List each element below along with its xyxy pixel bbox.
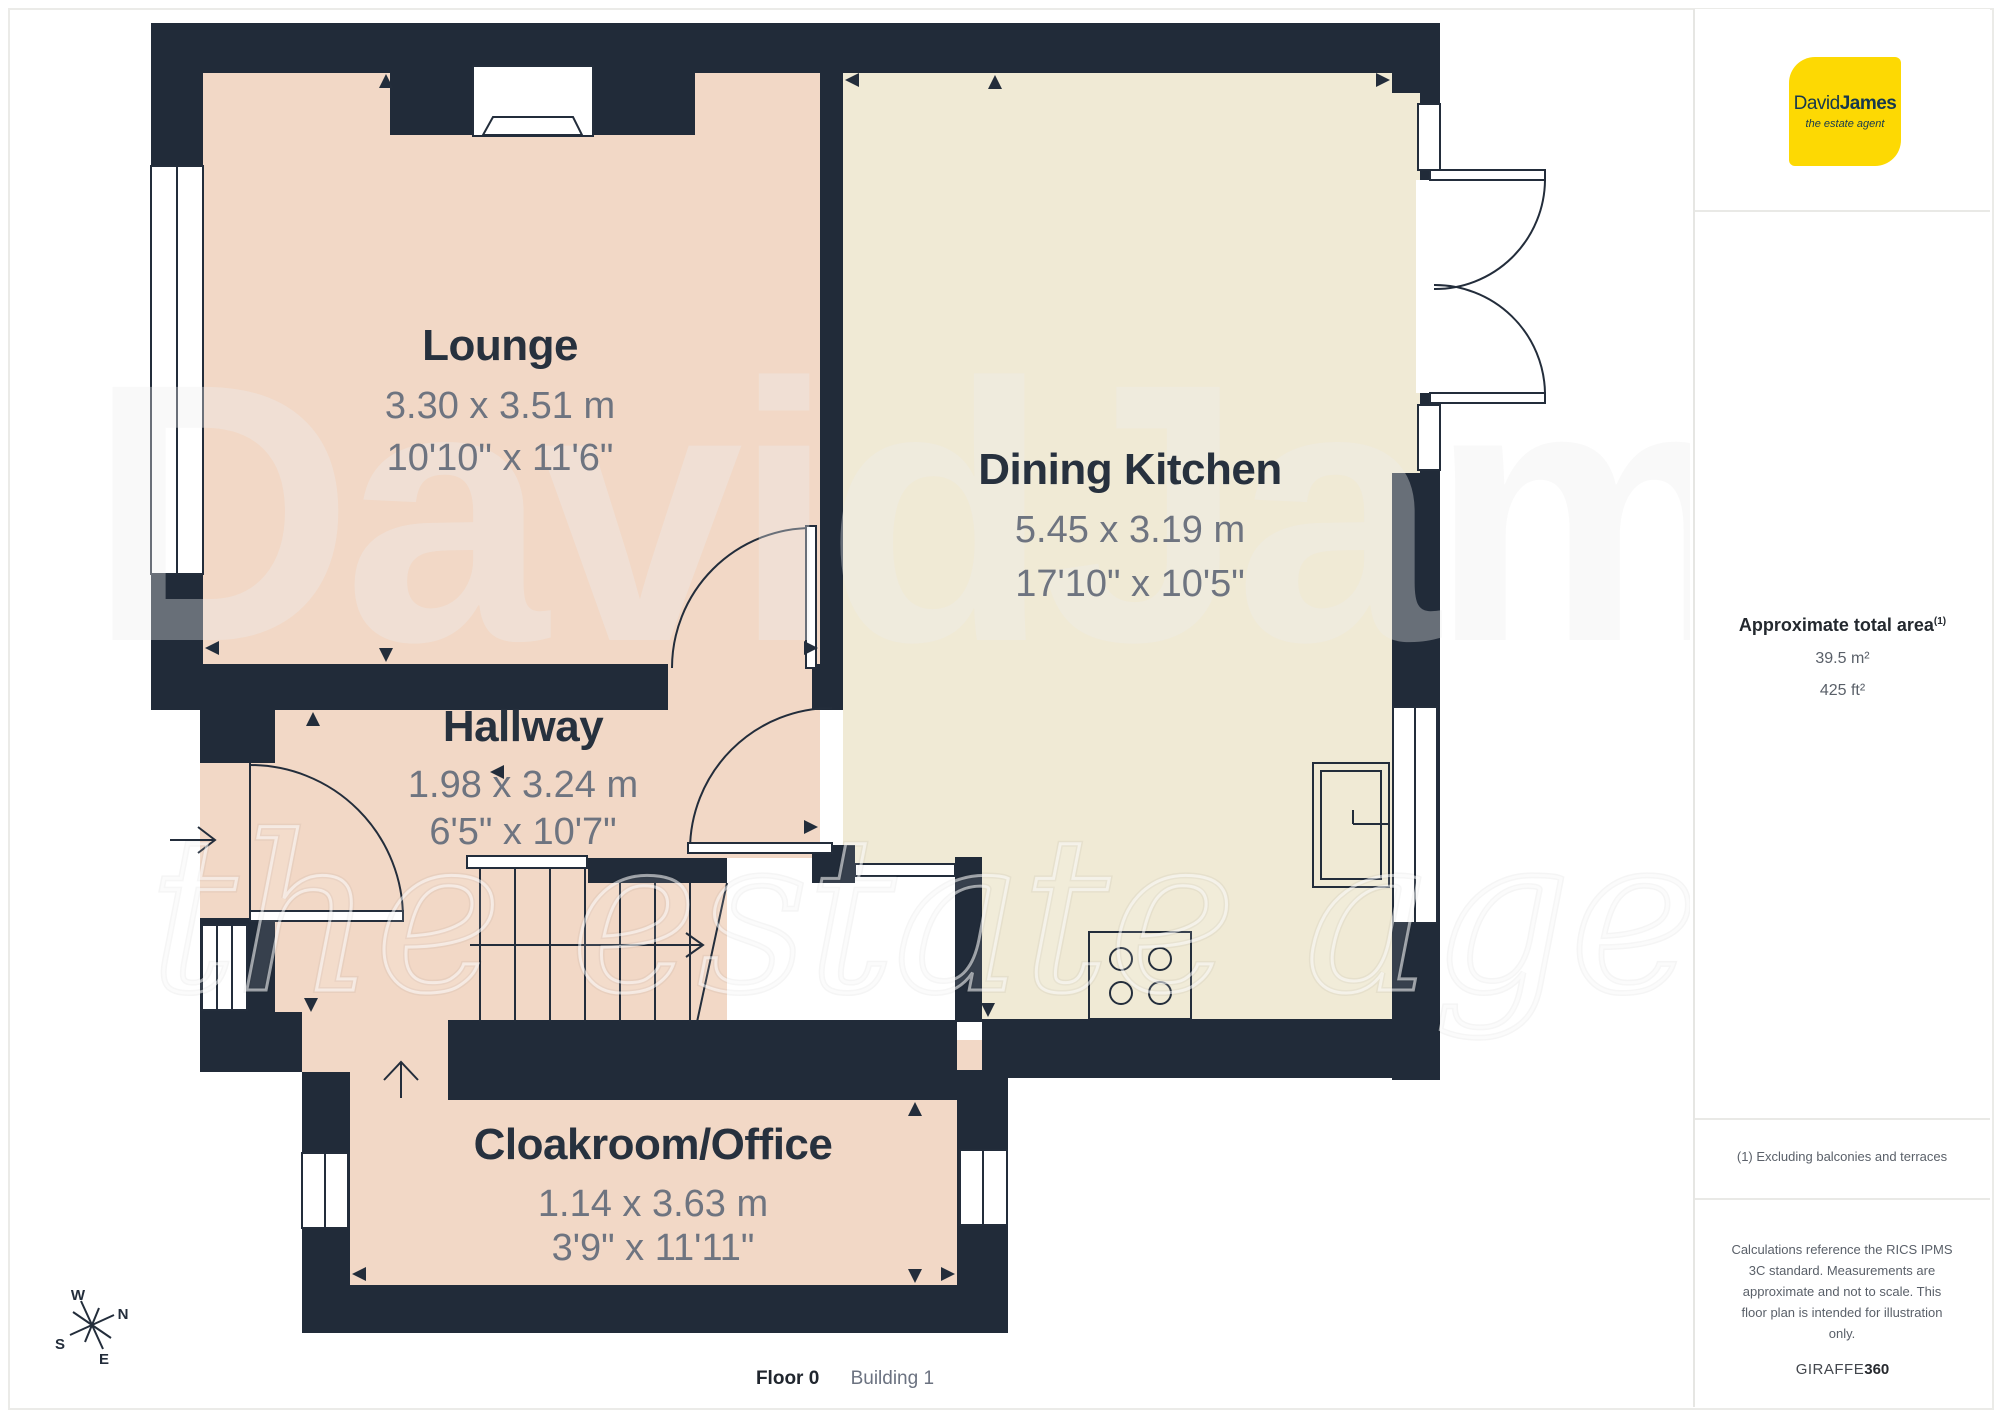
watermark: DavidJames DavidJames the estate agent t…: [88, 307, 1690, 1041]
dining-kitchen-imperial: 17'10" x 10'5": [1015, 563, 1245, 605]
sidebar-divider-1: [1695, 210, 1990, 212]
cloakroom-imperial: 3'9" x 11'11": [552, 1227, 755, 1269]
compass-n: N: [118, 1306, 129, 1323]
cloakroom-window-right-icon: [960, 1150, 1007, 1225]
total-area-block: Approximate total area(1) 39.5 m² 425 ft…: [1695, 615, 1990, 700]
total-area-metric: 39.5 m²: [1695, 650, 1990, 668]
agency-logo: DavidJames the estate agent: [1789, 57, 1901, 166]
compass-icon: W N S E: [55, 1287, 128, 1368]
agency-logo-tagline: the estate agent: [1806, 118, 1885, 130]
bay-window-icon: [473, 66, 593, 136]
lounge-metric: 3.30 x 3.51 m: [385, 385, 615, 427]
lounge-label: Lounge: [422, 321, 578, 370]
cloakroom-label: Cloakroom/Office: [474, 1120, 833, 1169]
floorplan-page: DavidJames DavidJames the estate agent t…: [0, 0, 2000, 1415]
compass-e: E: [99, 1351, 109, 1368]
compass-w: W: [71, 1287, 86, 1304]
cloakroom-metric: 1.14 x 3.63 m: [538, 1183, 768, 1225]
building-label: Building 1: [851, 1368, 934, 1389]
plan-caption: Floor 0 Building 1: [0, 1368, 1690, 1390]
dining-kitchen-metric: 5.45 x 3.19 m: [1015, 509, 1245, 551]
agency-logo-name: DavidJames: [1794, 93, 1897, 115]
lounge-imperial: 10'10" x 11'6": [387, 437, 614, 479]
sidebar: DavidJames the estate agent Approximate …: [1693, 9, 1990, 1407]
hallway-imperial: 6'5" x 10'7": [429, 811, 616, 853]
disclaimer-text: Calculations reference the RICS IPMS 3C …: [1717, 1239, 1967, 1344]
giraffe360-brand: GIRAFFE360: [1695, 1361, 1990, 1378]
cloakroom-window-left-icon: [302, 1153, 348, 1228]
floor-label: Floor 0: [756, 1368, 819, 1389]
compass-s: S: [55, 1336, 65, 1353]
kitchen-window-top-icon: [1418, 104, 1440, 170]
total-area-title: Approximate total area(1): [1695, 615, 1990, 636]
hallway-label: Hallway: [443, 702, 604, 751]
sidebar-divider-2: [1695, 1118, 1990, 1120]
svg-text:the estate agent: the estate agent: [150, 790, 1690, 1041]
hallway-metric: 1.98 x 3.24 m: [408, 764, 638, 806]
dining-kitchen-label: Dining Kitchen: [978, 445, 1281, 494]
sidebar-divider-3: [1695, 1198, 1990, 1200]
exclusion-note: (1) Excluding balconies and terraces: [1707, 1149, 1977, 1164]
total-area-imperial: 425 ft²: [1695, 682, 1990, 700]
svg-text:DavidJames: DavidJames: [88, 307, 1690, 718]
floorplan-canvas: DavidJames DavidJames the estate agent t…: [0, 0, 1690, 1415]
